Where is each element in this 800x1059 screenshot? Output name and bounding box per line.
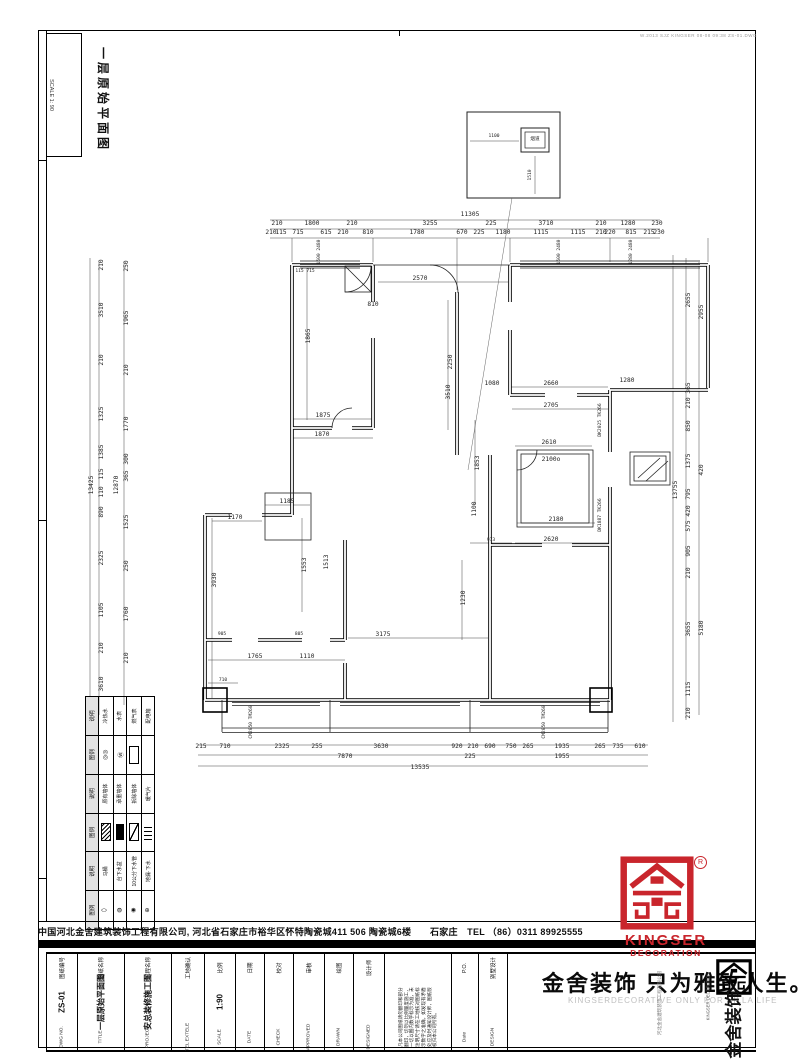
dim-label: 1500 2480: [316, 239, 322, 264]
dim-label: 210: [467, 743, 478, 750]
solid-symbol-icon: [114, 813, 127, 852]
titleblock-cn: 比例: [216, 963, 224, 974]
dim-label: 2570: [413, 275, 428, 282]
drawing-sheet: { "sheet": { "title_vertical": "一层原始平面图"…: [0, 0, 800, 1052]
titleblock-en: Date: [463, 1031, 468, 1041]
dim-label: 2955: [698, 304, 705, 319]
titleblock-en: SCALE: [218, 1029, 223, 1045]
dim-label: 7870: [338, 753, 353, 760]
dim-label: 225: [473, 229, 484, 236]
dim-label: 3175: [376, 631, 391, 638]
frame-left-inner: [46, 30, 47, 922]
inset-detail: [467, 112, 560, 470]
dim-label: 3510: [445, 384, 452, 399]
titleblock-field: 校对CHECK: [265, 954, 294, 1050]
sheet-title: 一层原始平面图: [95, 47, 112, 152]
titleblock-cn: 审核: [305, 963, 313, 974]
dim-label: 210: [98, 354, 105, 365]
dim-label: 1325: [98, 406, 105, 421]
titleblock-en: TITLE: [99, 1030, 104, 1043]
dim-label: 365: [123, 470, 130, 481]
dim-label: 2325: [275, 743, 290, 750]
legend-table: 图例说明图例说明图例说明⬯马桶原有墙体◎◎冷热水◍台下水盆承重墙体Ⓦ水表◉10公…: [85, 696, 155, 930]
titleblock-strip: 图纸编号ZS-01DWG NO.图纸名称一层原始平面图TITLE工程名称安总装修…: [46, 952, 756, 1052]
titleblock-en: APPROVED: [307, 1023, 312, 1050]
c1-symbol-icon: ◎◎: [98, 735, 113, 774]
titleblock-field: 图纸编号ZS-01DWG NO.: [46, 954, 78, 1050]
legend-desc: 承重墙体: [114, 774, 127, 813]
brand-slogan: 金舍装饰 只为雅致人生。: [542, 966, 800, 998]
dim-label: 230: [651, 220, 662, 227]
dim-label: CM2050 TM260: [248, 705, 254, 738]
dim-label: 920: [451, 743, 462, 750]
dim-label: 420: [685, 505, 692, 516]
dim-label: 210: [346, 220, 357, 227]
dim-label: DK2025 TK266: [597, 403, 603, 436]
titleblock-en: DESIGN: [491, 1027, 496, 1045]
dimension-chains: [90, 220, 708, 766]
dim-label: 795: [685, 488, 692, 499]
dim-label: 1553: [301, 557, 308, 572]
titleblock-field: 设计师DESIGNED: [354, 954, 385, 1050]
dim-label: 210: [98, 642, 105, 653]
titleblock-field: 工程名称安总装修施工图PROJECT: [125, 954, 172, 1050]
dimension-labels: 1130521018002103255225371021012802302101…: [88, 133, 705, 771]
dim-label: 1770: [123, 416, 130, 431]
dim-label: 210: [98, 259, 105, 270]
dim-label: 2660: [544, 380, 559, 387]
titleblock-field: 工地确认TEL EXTELE: [172, 954, 205, 1050]
dim-label: 1185: [280, 498, 295, 505]
dim-label: 1865: [305, 328, 312, 343]
legend-header: 图例: [86, 735, 99, 774]
titleblock-disclaimer: 凡本公司图纸请勿翻印和部分翻印，切勿以比例量度施工，一切以图内数字标示为准，未注…: [398, 957, 438, 1047]
dim-label: 1965: [123, 310, 130, 325]
legend-header: 说明: [86, 852, 99, 891]
dim-label: 115: [98, 468, 105, 479]
dim-label: 1800: [305, 220, 320, 227]
titleblock-val: 一层原始平面图: [96, 974, 107, 1030]
dim-label: 255: [311, 743, 322, 750]
legend-desc: 原有墙体: [98, 774, 113, 813]
dim-label: 210: [595, 220, 606, 227]
dim-label: 670: [456, 229, 467, 236]
legend-desc: 暖气片: [142, 774, 155, 813]
titleblock-field: 审核APPROVED: [294, 954, 325, 1050]
dim-label: 250: [123, 560, 130, 571]
dim-label: 1875: [316, 412, 331, 419]
dim-label: 1080: [485, 380, 500, 387]
dim-label: 265: [594, 743, 605, 750]
dim-label: 265: [522, 743, 533, 750]
dim-label: 610: [634, 743, 645, 750]
stamp-kingser-text: KINGSER DECORATION: [705, 973, 710, 1021]
dim-label: 1765: [248, 653, 263, 660]
frame-top: [38, 30, 756, 31]
dim-label: 210: [123, 364, 130, 375]
dim-label: 13535: [411, 764, 430, 771]
titleblock-en: CHECK: [277, 1028, 282, 1045]
legend-desc: 冷热水: [98, 697, 113, 736]
dim-label: 225: [464, 753, 475, 760]
dim-label: 1100: [471, 501, 478, 516]
dim-label: 1280 2480: [628, 239, 634, 264]
dim-label: 3655: [685, 621, 692, 636]
dim-label: 735: [612, 743, 623, 750]
titleblock-en: DESIGNED: [367, 1024, 372, 1049]
titleblock-en: TEL EXTELE: [186, 1022, 191, 1050]
titleblock-val: 1:90: [216, 994, 225, 1010]
dim-label: 110: [98, 486, 105, 497]
titleblock-cn: 绘图: [335, 963, 343, 974]
margin-tick: [38, 520, 46, 521]
none-symbol-icon: [142, 735, 155, 774]
dim-label: 215: [643, 229, 654, 236]
dim-label: 1935: [555, 743, 570, 750]
dim-label: 115: [275, 229, 286, 236]
dim-label: 575: [685, 520, 692, 531]
dim-label: 215: [195, 743, 206, 750]
legend-desc: 台下水盆: [114, 852, 127, 891]
legend: 图例说明图例说明图例说明⬯马桶原有墙体◎◎冷热水◍台下水盆承重墙体Ⓦ水表◉10公…: [85, 696, 155, 930]
dim-label: 2705: [544, 402, 559, 409]
brand-slogan-en: KINGSERDECORATIVE ONLY FOR VILLA LIFE: [568, 996, 778, 1005]
legend-desc: 10公分下水管: [126, 852, 141, 891]
dim-label: 1780: [410, 229, 425, 236]
dim-label: 1100: [488, 133, 499, 139]
kingser-wordmark: KINGSER: [620, 932, 712, 949]
margin-tick: [38, 160, 46, 161]
titleblock-en: DATE: [248, 1030, 253, 1042]
dim-label: 1115: [685, 681, 692, 696]
dim-label: 12870: [113, 475, 120, 494]
dim-label: 890: [98, 506, 105, 517]
dim-label: 2610: [542, 439, 557, 446]
dim-label: 烟道: [530, 135, 540, 142]
kingser-logo-mark: [620, 856, 694, 930]
dim-label: 3930: [211, 572, 218, 587]
titleblock-field: 凡本公司图纸请勿翻印和部分翻印，切勿以比例量度施工，一切以图内数字标示为准，未注…: [385, 954, 452, 1050]
c2-symbol-icon: Ⓦ: [114, 735, 127, 774]
legend-header: 说明: [86, 774, 99, 813]
dim-label: 2325: [98, 550, 105, 565]
legend-desc: 配电箱: [142, 697, 155, 736]
dim-label: 710: [219, 677, 228, 683]
dim-label: 115 715: [295, 268, 315, 274]
dim-label: 615: [320, 229, 331, 236]
dim-label: 2655: [685, 292, 692, 307]
titleblock-cn: 设计师: [365, 960, 373, 977]
titleblock-right-zone: 金舍装饰 只为雅致人生。KINGSERDECORATIVE ONLY FOR V…: [508, 954, 756, 1050]
titleblock-field: 绘图DRAWN: [325, 954, 354, 1050]
dim-label: 1760: [123, 606, 130, 621]
dim-label: 1870: [315, 431, 330, 438]
dim-label: 1500 2480: [556, 239, 562, 264]
legend-desc: 拆除墙体: [126, 774, 141, 813]
dim-label: 3630: [374, 743, 389, 750]
titleblock-field: 比例1:90SCALE: [205, 954, 236, 1050]
dim-label: 250: [123, 260, 130, 271]
windows-and-balcony: [203, 261, 700, 733]
dim-label: 1230: [460, 590, 467, 605]
dim-label: 3255: [423, 220, 438, 227]
door-arcs: [332, 265, 537, 470]
dim-label: 1853: [474, 455, 481, 470]
titleblock-cn: 图纸编号: [58, 957, 66, 979]
titleblock-val: 安总装修施工图: [143, 974, 154, 1030]
dim-label: 1525: [123, 514, 130, 529]
dim-label: 1115: [571, 229, 586, 236]
dim-label: 905: [685, 545, 692, 556]
dim-label: 225: [485, 220, 496, 227]
rect-symbol-icon: [126, 735, 141, 774]
dim-label: 905: [218, 631, 227, 637]
dim-label: 850: [685, 420, 692, 431]
titleblock-field: P.O.Date: [452, 954, 479, 1050]
dim-label: 815: [625, 229, 636, 236]
decoration-wordmark: DECORATION: [620, 948, 712, 958]
titleblock-field: 日期DATE: [236, 954, 265, 1050]
registered-mark: R: [694, 856, 707, 869]
titleblock-cn: 别墅设计: [489, 957, 497, 979]
dim-label: 210: [685, 567, 692, 578]
dim-label: 300: [123, 453, 130, 464]
dim-label: 1510: [527, 169, 533, 180]
dim-label: 1385: [98, 444, 105, 459]
legend-desc: 燃气表: [126, 697, 141, 736]
dim-label: 810: [362, 229, 373, 236]
titleblock-cn: 工地确认: [184, 957, 192, 979]
dim-label: 3610: [98, 676, 105, 691]
diag-symbol-icon: [126, 813, 141, 852]
dim-label: 690: [484, 743, 495, 750]
legend-header: 图例: [86, 813, 99, 852]
company-vertical-text: 河北金舍建筑装饰工程有限公司: [657, 971, 663, 1035]
dim-label: 1115: [534, 229, 549, 236]
legend-desc: 水表: [114, 697, 127, 736]
dim-label: 210: [685, 397, 692, 408]
dim-label: 210: [595, 229, 606, 236]
dim-label: 210: [337, 229, 348, 236]
dim-label: 2250: [447, 354, 454, 369]
titleblock-field: 别墅设计DESIGN: [479, 954, 508, 1050]
dim-label: 3510: [98, 302, 105, 317]
dim-label: 210: [265, 229, 276, 236]
plot-stamp: W.2013 SJZ KINGSER 08-08 09:38 ZS-01.DWG: [640, 33, 757, 38]
dim-label: 1280: [621, 220, 636, 227]
titleblock-cn: 日期: [246, 963, 254, 974]
dim-label: 1105: [98, 602, 105, 617]
dim-label: 1375: [685, 453, 692, 468]
dim-label: 1280: [620, 377, 635, 384]
walls: [205, 265, 708, 700]
dim-label: 13425: [88, 475, 95, 494]
dim-label: 1513: [323, 554, 330, 569]
dim-label: 1955: [555, 753, 570, 760]
titleblock-val: ZS-01: [58, 991, 67, 1013]
dim-label: 230: [653, 229, 664, 236]
dim-label: 810: [367, 301, 378, 308]
titleblock-en: DRAWN: [337, 1028, 342, 1046]
titleblock-cn: 校对: [275, 963, 283, 974]
frame-right: [755, 30, 756, 1048]
titleblock-field: 图纸名称一层原始平面图TITLE: [78, 954, 125, 1050]
dim-label: 365: [685, 382, 692, 393]
dim-label: 5180: [698, 620, 705, 635]
kingser-logo: R KINGSER DECORATION: [620, 856, 712, 966]
dim-label: 420: [698, 464, 705, 475]
dim-label: 210: [685, 707, 692, 718]
dim-label: 210: [271, 220, 282, 227]
frame-center-tick: [399, 30, 400, 36]
dim-label: 13755: [672, 480, 679, 499]
dim-label: 2620: [544, 536, 559, 543]
titleblock-cn: P.O.: [462, 963, 468, 973]
dim-label: 1180: [496, 229, 511, 236]
margin-tick: [38, 878, 46, 879]
titleblock-en: DWG NO.: [60, 1026, 65, 1048]
dim-label: 1170: [228, 514, 243, 521]
legend-header: 说明: [86, 697, 99, 736]
titleblock-en: PROJECT: [146, 1025, 151, 1047]
dim-label: 1110: [300, 653, 315, 660]
frame-left: [38, 30, 39, 1048]
dim-label: 3710: [539, 220, 554, 227]
dim-label: 220: [604, 229, 615, 236]
legend-desc: 地漏·下水: [142, 852, 155, 891]
sheet-scale: SCALE 1: 90: [48, 79, 54, 111]
sheet-title-box: 一层原始平面图 SCALE 1: 90: [46, 33, 82, 157]
dim-label: 750: [505, 743, 516, 750]
hatch-symbol-icon: [98, 813, 113, 852]
dim-label: 715: [292, 229, 303, 236]
dim-label: 11305: [461, 211, 480, 218]
dim-label: CM2050 TM260: [541, 705, 547, 738]
stamp-brand-cn: 金舍装饰: [720, 991, 745, 1059]
dim-label: DK1887 TK266: [597, 498, 603, 531]
dim-label: 805: [295, 631, 304, 637]
company-info-text: 中国河北金舍建筑装饰工程有限公司, 河北省石家庄市裕华区怀特陶瓷城411 506…: [38, 927, 583, 937]
dim-label: 210: [123, 652, 130, 663]
dim-label: 710: [219, 743, 230, 750]
dim-label: 2180: [549, 516, 564, 523]
lines-symbol-icon: [142, 813, 155, 852]
dim-label: 973: [487, 537, 496, 543]
dim-label: 2100o: [542, 456, 561, 463]
legend-desc: 马桶: [98, 852, 113, 891]
